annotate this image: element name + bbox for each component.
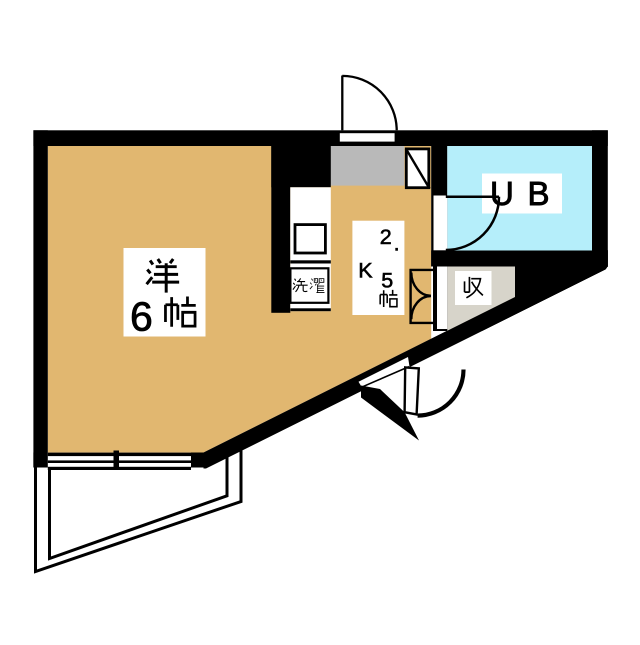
svg-text:.: . [394,232,400,256]
svg-text:B: B [528,175,550,212]
svg-text:K: K [358,258,373,282]
svg-text:U: U [490,175,514,212]
svg-text:6: 6 [130,293,153,339]
svg-text:5: 5 [381,268,393,292]
svg-text:2: 2 [380,225,392,249]
